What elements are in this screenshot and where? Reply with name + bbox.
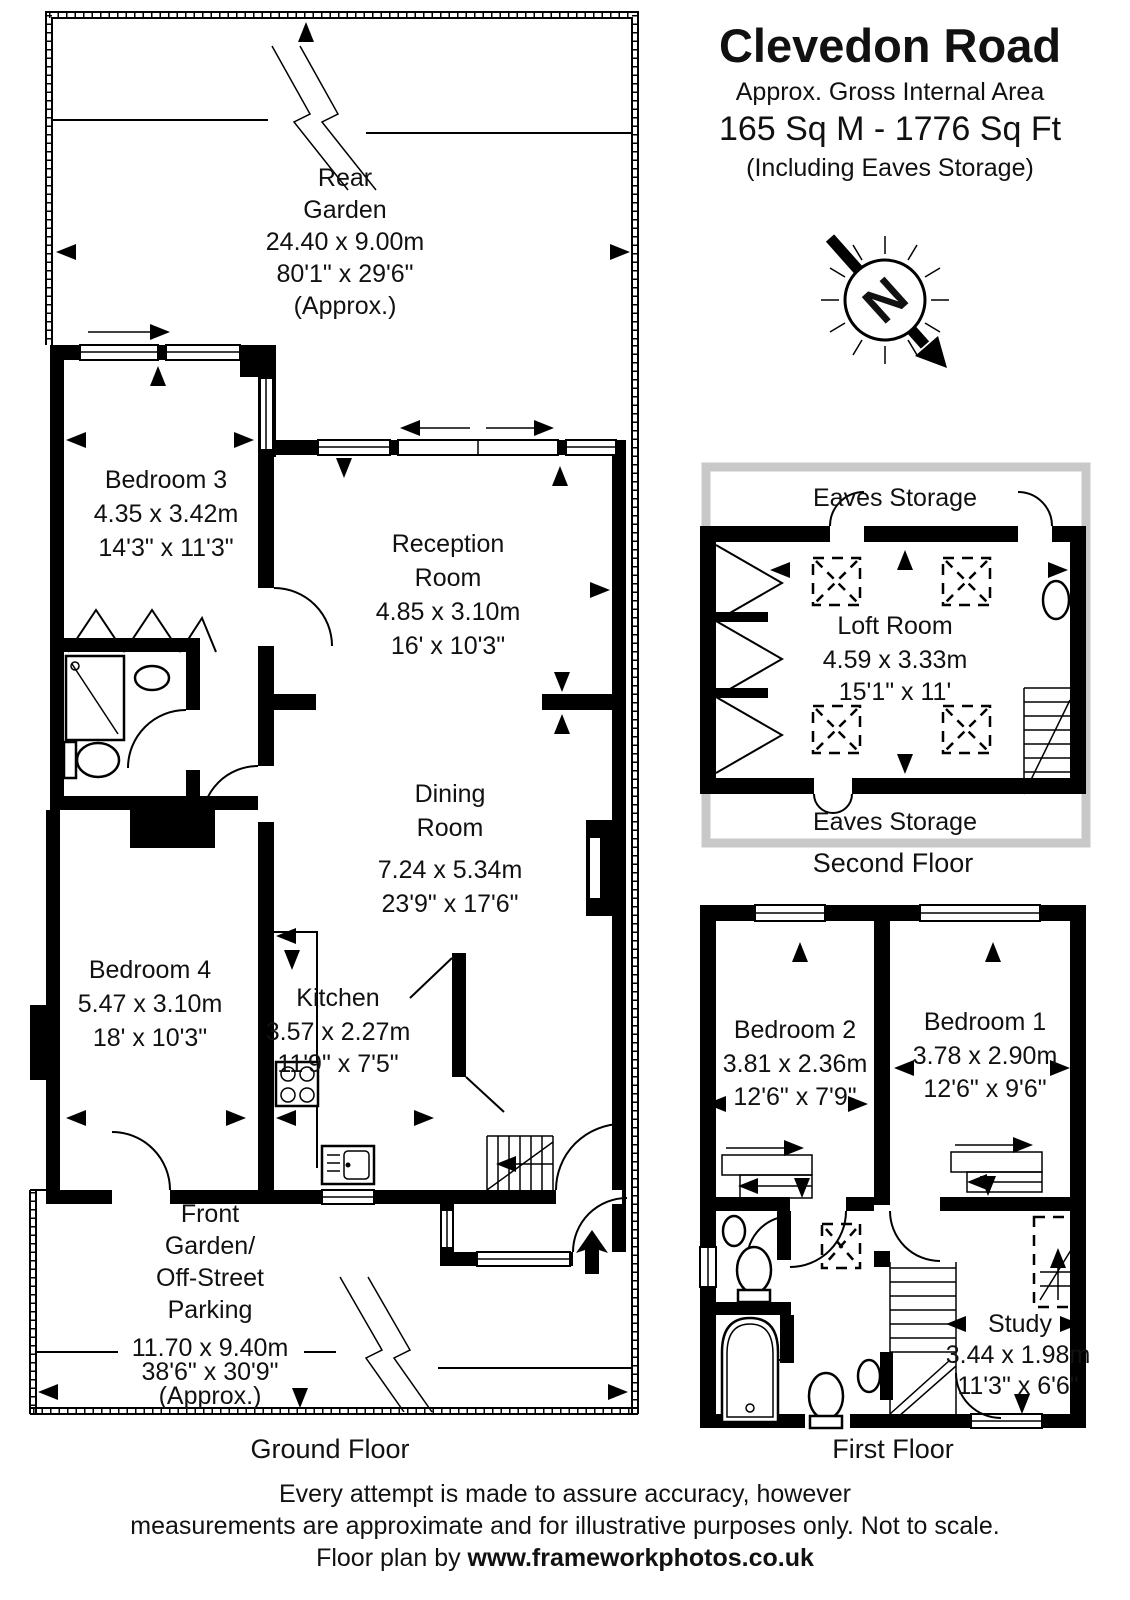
kitchen-name: Kitchen (296, 984, 379, 1012)
reception-dims-m: 4.85 x 3.10m (376, 598, 521, 626)
bedroom1-dims-m: 3.78 x 2.90m (913, 1042, 1058, 1070)
rear-garden-note: (Approx.) (294, 292, 397, 320)
rear-garden-name2: Garden (303, 196, 386, 224)
disclaimer-line2: measurements are approximate and for ill… (130, 1512, 999, 1540)
second-floor-plan: Eaves Storage Eaves Storage Loft Room 4.… (700, 467, 1086, 878)
dining-dims-m: 7.24 x 5.34m (378, 856, 523, 884)
wc-sink-icon (723, 1216, 745, 1246)
bedroom2-dims-ft: 12'6" x 7'9" (733, 1083, 856, 1111)
front-garden-name3: Off-Street (156, 1264, 264, 1292)
stairs-ground (487, 1136, 553, 1190)
room-label-bedroom1: Bedroom 1 3.78 x 2.90m 12'6" x 9'6" (913, 1008, 1058, 1103)
reception-dims-ft: 16' x 10'3" (391, 632, 505, 660)
disclaimer-line1: Every attempt is made to assure accuracy… (279, 1480, 851, 1508)
loft-dims-m: 4.59 x 3.33m (823, 646, 968, 674)
rear-garden-name1: Rear (318, 164, 372, 192)
front-garden-note: (Approx.) (159, 1382, 262, 1410)
loft-dims-ft: 15'1" x 11' (839, 678, 951, 706)
wc-toilet-icon (737, 1247, 771, 1302)
floorplan-canvas: Clevedon Road Approx. Gross Internal Are… (0, 0, 1130, 1600)
bedroom4-dims-ft: 18' x 10'3" (93, 1024, 207, 1052)
credit-url: www.frameworkphotos.co.uk (467, 1544, 814, 1572)
front-garden-name4: Parking (168, 1296, 253, 1324)
room-label-reception: Reception Room 4.85 x 3.10m 16' x 10'3" (376, 530, 521, 660)
ground-floor-label: Ground Floor (250, 1434, 409, 1464)
study-dims-ft: 11'3" x 6'6" (957, 1372, 1078, 1400)
bathroom-toilet-icon (809, 1373, 843, 1428)
first-floor-label: First Floor (832, 1434, 954, 1464)
kitchen-dims-ft: 11'9" x 7'5" (277, 1050, 398, 1078)
front-garden-name1: Front (181, 1200, 239, 1228)
bedroom3-dims-m: 4.35 x 3.42m (94, 500, 239, 528)
rear-garden-dims-ft: 80'1" x 29'6" (276, 260, 413, 288)
eaves-storage-top-label: Eaves Storage (813, 484, 977, 512)
room-label-rear-garden: Rear Garden 24.40 x 9.00m 80'1" x 29'6" … (266, 164, 424, 320)
dining-name1: Dining (415, 780, 486, 808)
dining-dims-ft: 23'9" x 17'6" (381, 890, 518, 918)
loft-name: Loft Room (837, 612, 952, 640)
kitchen-dims-m: 3.57 x 2.27m (266, 1018, 411, 1046)
bedroom1-name: Bedroom 1 (924, 1008, 1046, 1036)
bedroom2-dims-m: 3.81 x 2.36m (723, 1050, 868, 1078)
north-arrow-icon: N (821, 236, 949, 368)
wardrobe-bedroom2 (722, 1140, 812, 1198)
landing-skylight-icon (822, 1224, 860, 1268)
room-label-loft: Loft Room 4.59 x 3.33m 15'1" x 11' (823, 612, 968, 706)
room-label-bedroom2: Bedroom 2 3.81 x 2.36m 12'6" x 7'9" (723, 1016, 868, 1111)
room-label-front-garden: Front Garden/ Off-Street Parking 11.70 x… (118, 1200, 304, 1410)
first-floor-plan: Bedroom 2 3.81 x 2.36m 12'6" x 7'9" Bedr… (700, 905, 1090, 1464)
room-label-bedroom4: Bedroom 4 5.47 x 3.10m 18' x 10'3" (78, 956, 223, 1052)
dining-name2: Room (417, 814, 484, 842)
bedroom1-dims-ft: 12'6" x 9'6" (923, 1075, 1046, 1103)
title-area: 165 Sq M - 1776 Sq Ft (719, 110, 1062, 148)
bedroom4-name: Bedroom 4 (89, 956, 211, 984)
bedroom3-name: Bedroom 3 (105, 466, 227, 494)
reception-name1: Reception (392, 530, 505, 558)
title-area-note: (Including Eaves Storage) (746, 154, 1034, 182)
room-label-kitchen: Kitchen 3.57 x 2.27m 11'9" x 7'5" (266, 984, 411, 1078)
eaves-storage-bottom-label: Eaves Storage (813, 808, 977, 836)
page-title: Clevedon Road (719, 19, 1061, 72)
loft-sink-icon (1043, 581, 1069, 619)
bathroom-sink-icon (858, 1360, 880, 1392)
reception-name2: Room (415, 564, 482, 592)
room-label-bedroom3: Bedroom 3 4.35 x 3.42m 14'3" x 11'3" (94, 466, 239, 562)
bedroom2-name: Bedroom 2 (734, 1016, 856, 1044)
wardrobe-bedroom1 (951, 1137, 1042, 1192)
shower-icon (66, 656, 124, 740)
study-dims-m: 3.44 x 1.98m (946, 1341, 1091, 1369)
floorplan-page: Clevedon Road Approx. Gross Internal Are… (0, 0, 1130, 1600)
bedroom3-dims-ft: 14'3" x 11'3" (98, 534, 233, 562)
toilet-icon (64, 742, 119, 778)
second-floor-label: Second Floor (813, 848, 974, 878)
credit-prefix: Floor plan by (316, 1544, 467, 1572)
study-name: Study (988, 1310, 1052, 1338)
bedroom4-dims-m: 5.47 x 3.10m (78, 990, 223, 1018)
bath-icon (722, 1318, 778, 1422)
front-garden-name2: Garden/ (165, 1232, 255, 1260)
room-label-dining: Dining Room 7.24 x 5.34m 23'9" x 17'6" (378, 780, 523, 918)
footer-disclaimer: Every attempt is made to assure accuracy… (130, 1480, 999, 1572)
rear-garden-dims-m: 24.40 x 9.00m (266, 228, 424, 256)
sink-icon (135, 666, 169, 690)
kitchen-sink-icon (322, 1146, 374, 1184)
title-block: Clevedon Road Approx. Gross Internal Are… (719, 19, 1062, 182)
title-subtitle: Approx. Gross Internal Area (736, 78, 1045, 106)
credit-line: Floor plan by www.frameworkphotos.co.uk (316, 1544, 814, 1572)
